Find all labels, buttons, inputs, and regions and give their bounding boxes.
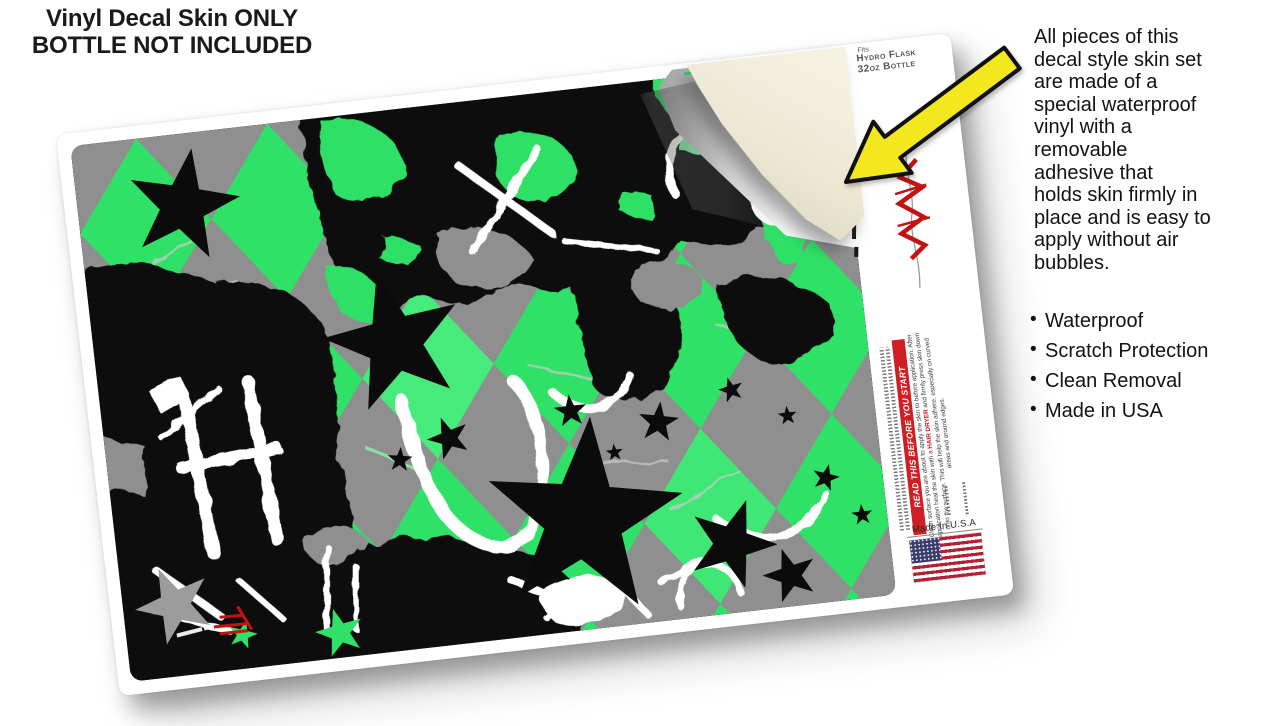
feature-item: Clean Removal (1030, 371, 1275, 392)
feature-list: Waterproof Scratch Protection Clean Remo… (1030, 311, 1275, 431)
info-panel: All pieces of this decal style skin set … (1034, 26, 1262, 275)
product-image-page: Vinyl Decal Skin ONLY BOTTLE NOT INCLUDE… (0, 0, 1280, 726)
kisscut-dash (854, 247, 858, 257)
instructions-block: READ THIS BEFORE YOU START Clean surface… (872, 322, 1000, 546)
feature-item: Waterproof (1030, 311, 1275, 332)
feature-item: Made in USA (1030, 401, 1275, 422)
flag-canton (909, 537, 941, 563)
feature-item: Scratch Protection (1030, 341, 1275, 362)
disclaimer-note: Vinyl Decal Skin ONLY BOTTLE NOT INCLUDE… (4, 6, 340, 60)
disclaimer-line-1: Vinyl Decal Skin ONLY (4, 6, 340, 33)
disclaimer-line-2: BOTTLE NOT INCLUDED (4, 33, 340, 60)
peel-arrow-icon (818, 30, 1033, 195)
us-flag-icon (909, 533, 985, 583)
info-paragraph: All pieces of this decal style skin set … (1034, 26, 1262, 275)
